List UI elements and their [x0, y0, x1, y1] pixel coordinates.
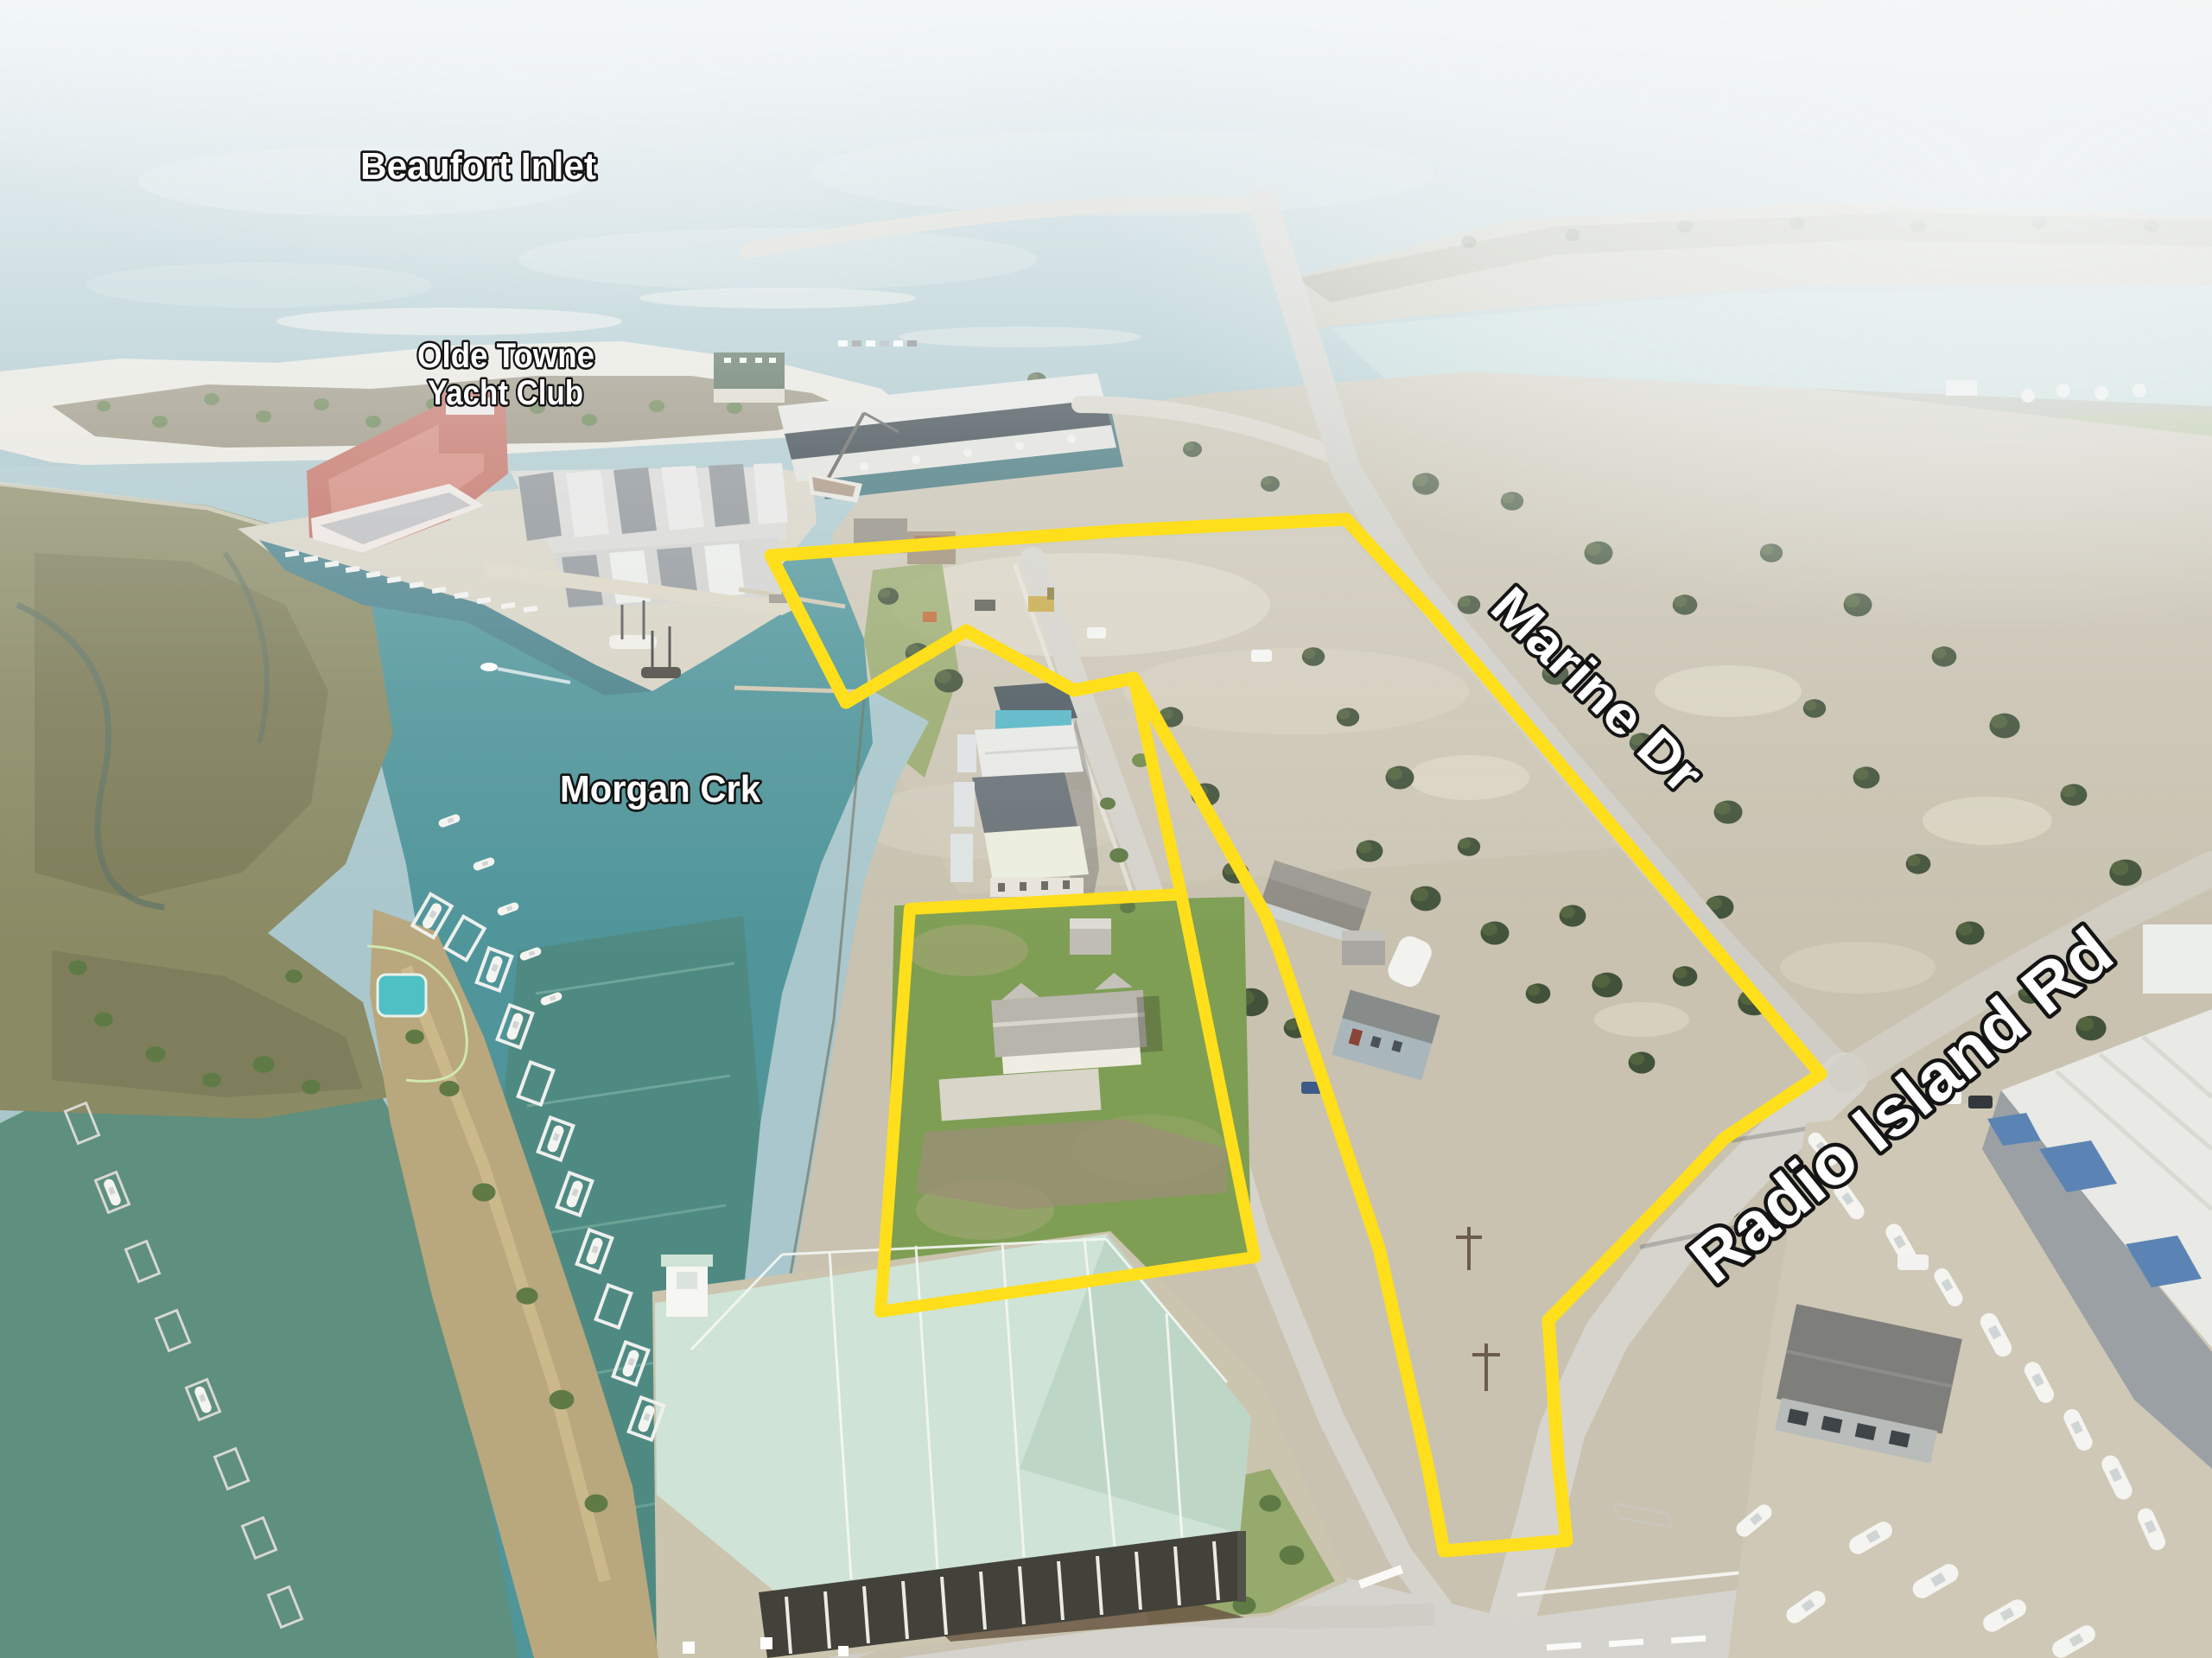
aerial-photo: Beaufort Inlet Olde Towne Yacht Club Mor… [0, 0, 2212, 1658]
aerial-map-screenshot: Beaufort Inlet Olde Towne Yacht Club Mor… [0, 0, 2212, 1658]
atmospheric-haze [0, 0, 2212, 1658]
label-yacht-club-line1: Olde Towne [417, 337, 594, 375]
label-yacht-club-line2: Yacht Club [428, 374, 583, 412]
label-morgan-creek: Morgan Crk [560, 768, 760, 810]
label-beaufort-inlet: Beaufort Inlet [360, 145, 596, 187]
